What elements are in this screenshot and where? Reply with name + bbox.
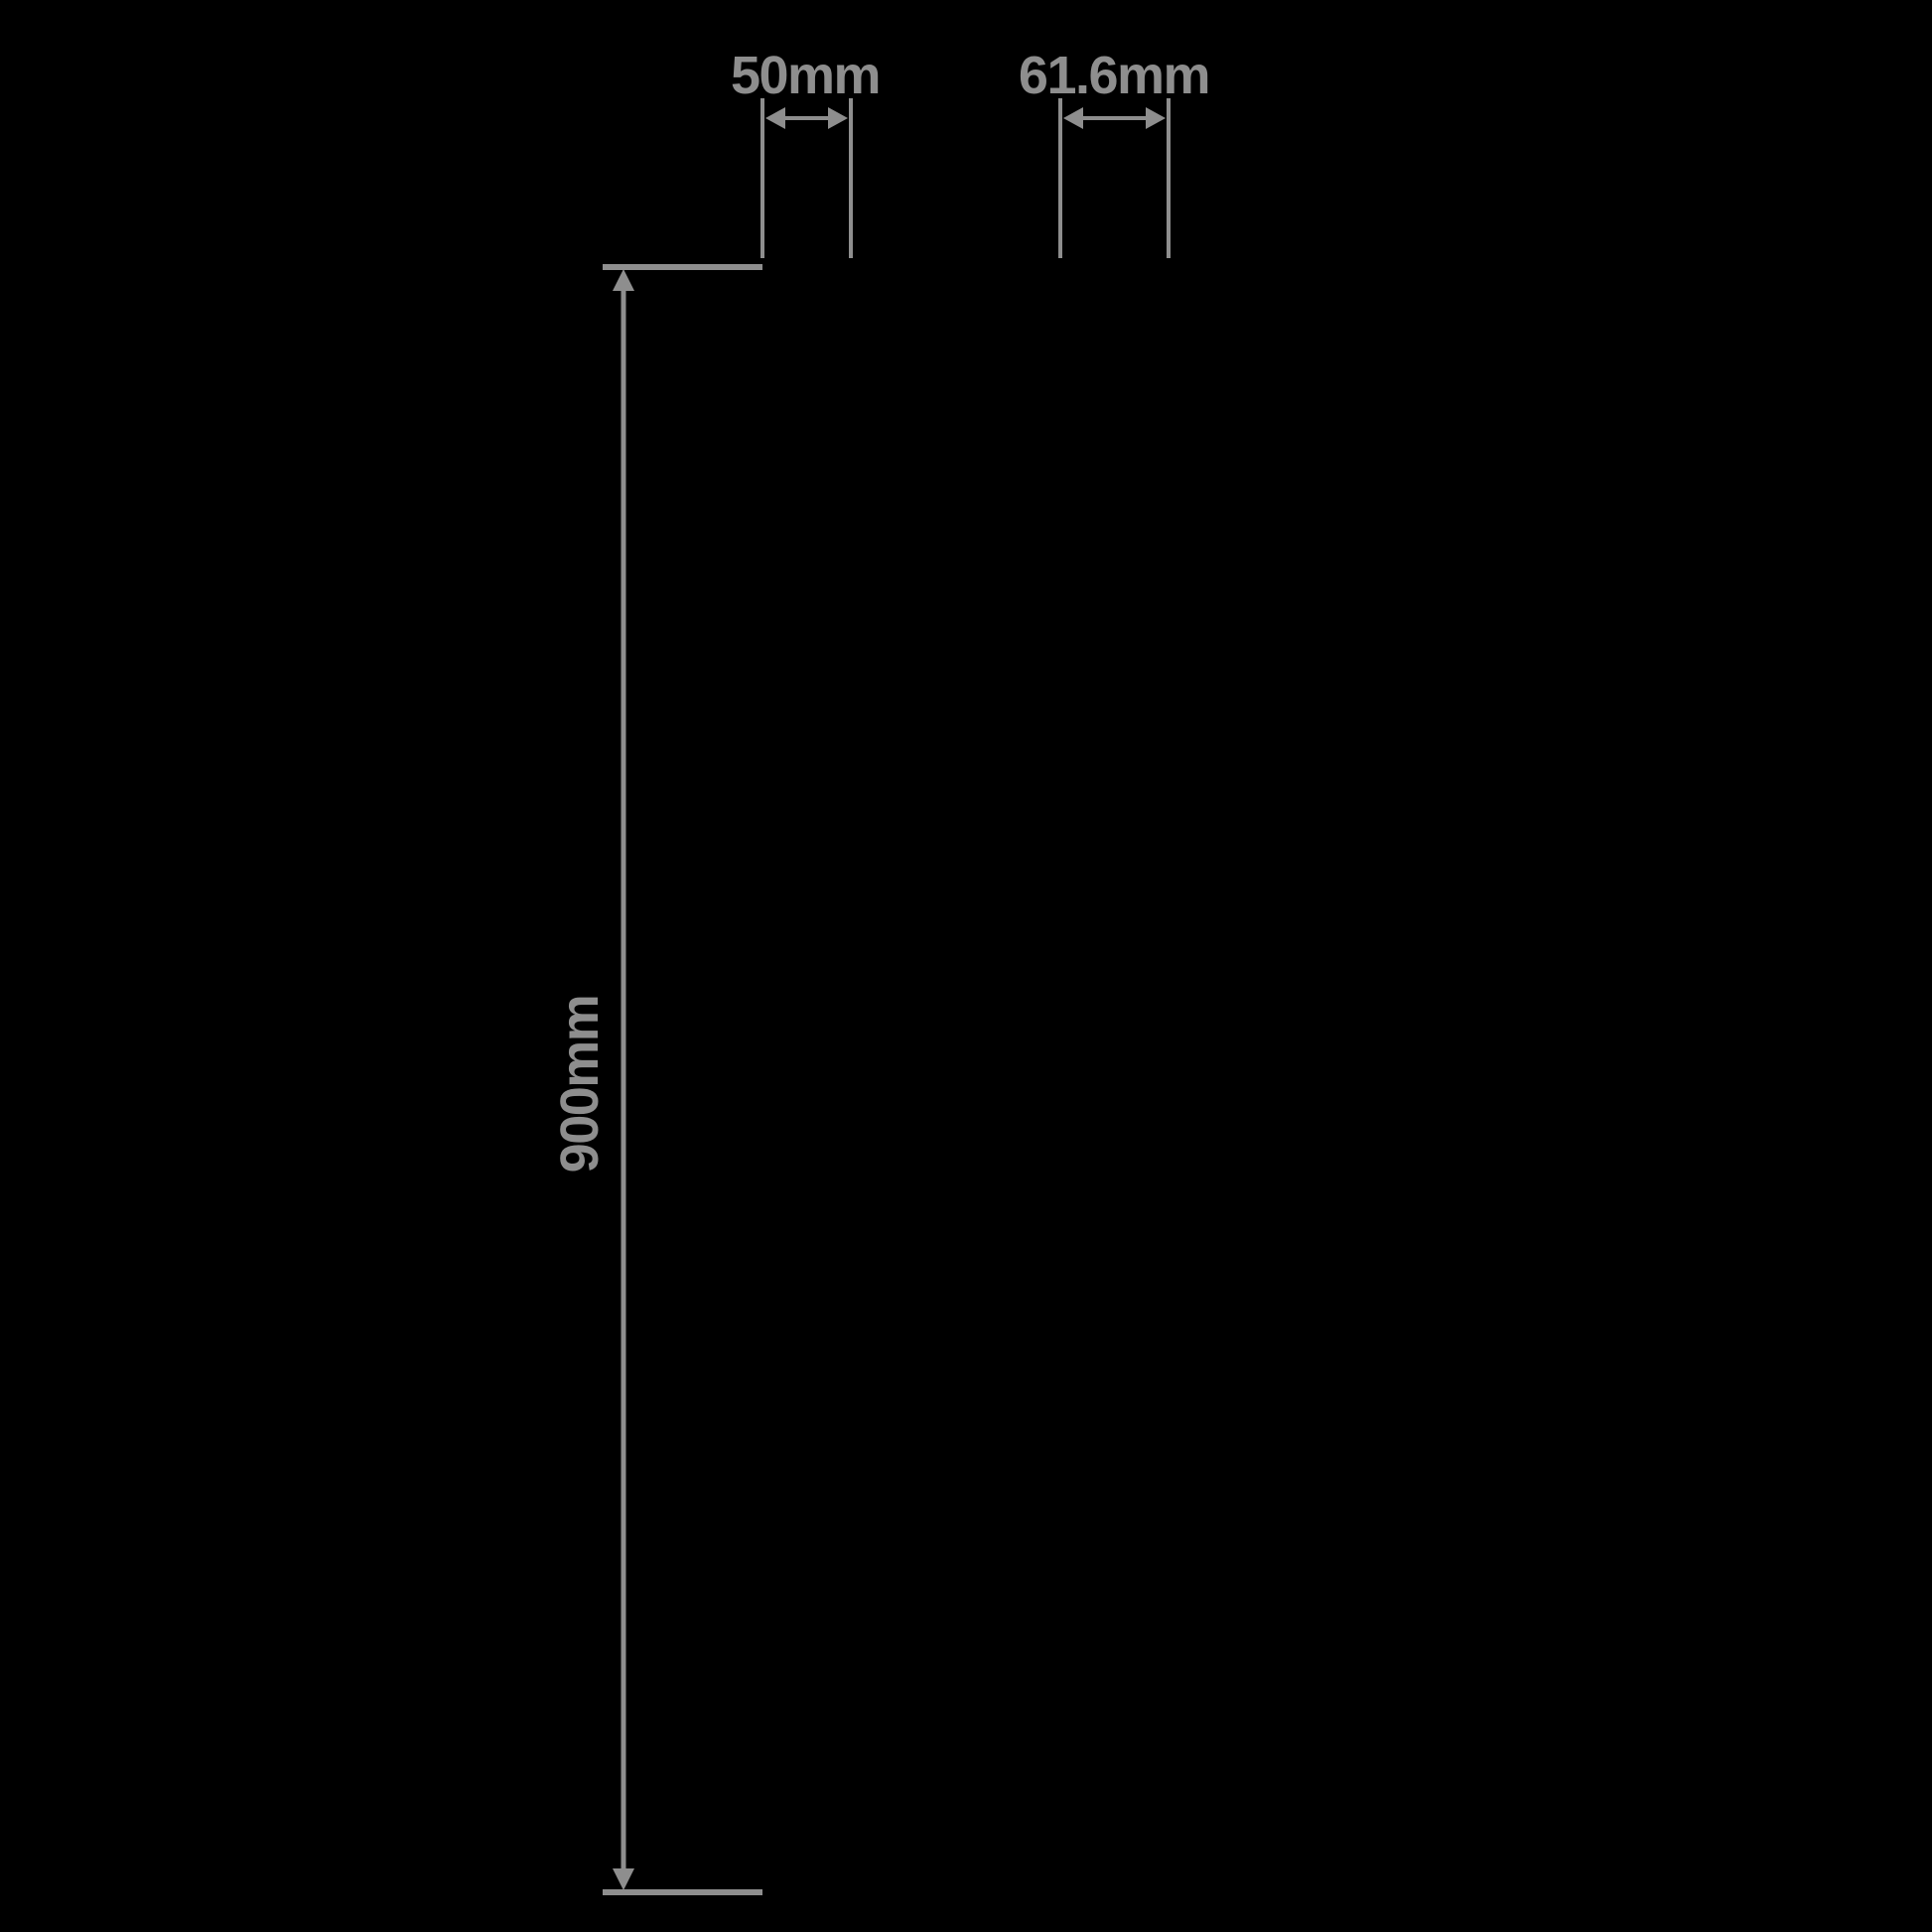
height-dimension-line <box>621 288 626 1870</box>
arrow-right-icon <box>1146 107 1166 129</box>
right-extension-line <box>1167 98 1171 258</box>
width-small-label: 50mm <box>731 46 880 105</box>
width-dimension-large: 61.6mm <box>1019 46 1209 258</box>
arrow-up-icon <box>613 269 634 291</box>
height-top-tick-line <box>603 264 762 270</box>
width-large-label: 61.6mm <box>1019 46 1209 105</box>
left-extension-line <box>1058 98 1062 258</box>
height-bottom-tick-line <box>603 1889 762 1895</box>
height-dimension: 900mm <box>550 264 762 1895</box>
width-small-dimension-line <box>783 116 830 120</box>
width-dimension-small: 50mm <box>731 46 880 258</box>
left-extension-line <box>760 98 764 258</box>
dimension-drawing-canvas: 900mm 50mm <box>0 0 1932 1932</box>
right-extension-line <box>849 98 853 258</box>
height-dimension-label: 900mm <box>550 996 610 1173</box>
width-large-dimension-line <box>1081 116 1148 120</box>
arrow-left-icon <box>765 107 785 129</box>
arrow-right-icon <box>828 107 848 129</box>
dimension-diagram: 900mm 50mm <box>0 0 1932 1932</box>
arrow-left-icon <box>1063 107 1083 129</box>
arrow-down-icon <box>613 1868 634 1890</box>
